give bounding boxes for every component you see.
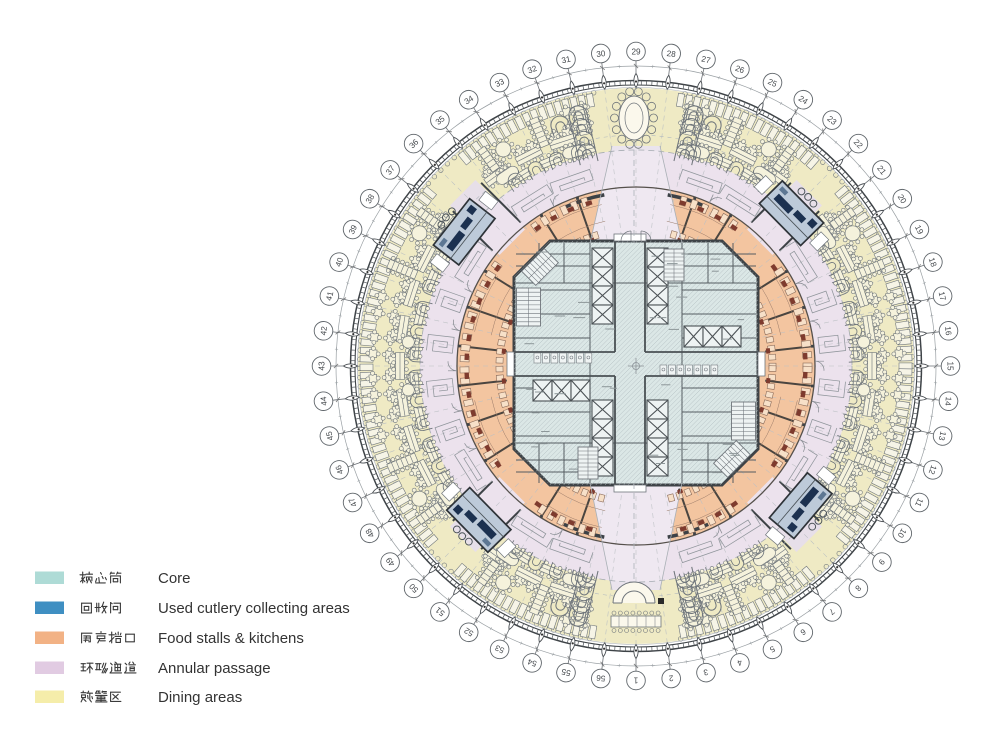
svg-text:44: 44 — [319, 396, 329, 406]
svg-text:1: 1 — [633, 676, 638, 685]
svg-text:43: 43 — [318, 361, 327, 371]
svg-text:Used cutlery collecting areas: Used cutlery collecting areas — [158, 600, 350, 617]
svg-text:14: 14 — [943, 396, 953, 406]
svg-text:29: 29 — [631, 48, 641, 57]
svg-text:15: 15 — [946, 361, 955, 371]
svg-text:28: 28 — [666, 49, 676, 59]
svg-text:Annular passage: Annular passage — [158, 660, 271, 677]
svg-text:Food stalls & kitchens: Food stalls & kitchens — [158, 630, 304, 647]
svg-text:Dining areas: Dining areas — [158, 689, 242, 706]
svg-text:56: 56 — [595, 673, 605, 683]
svg-text:30: 30 — [596, 49, 606, 59]
svg-text:Core: Core — [158, 570, 191, 587]
svg-text:42: 42 — [319, 325, 329, 335]
svg-text:16: 16 — [943, 326, 953, 336]
